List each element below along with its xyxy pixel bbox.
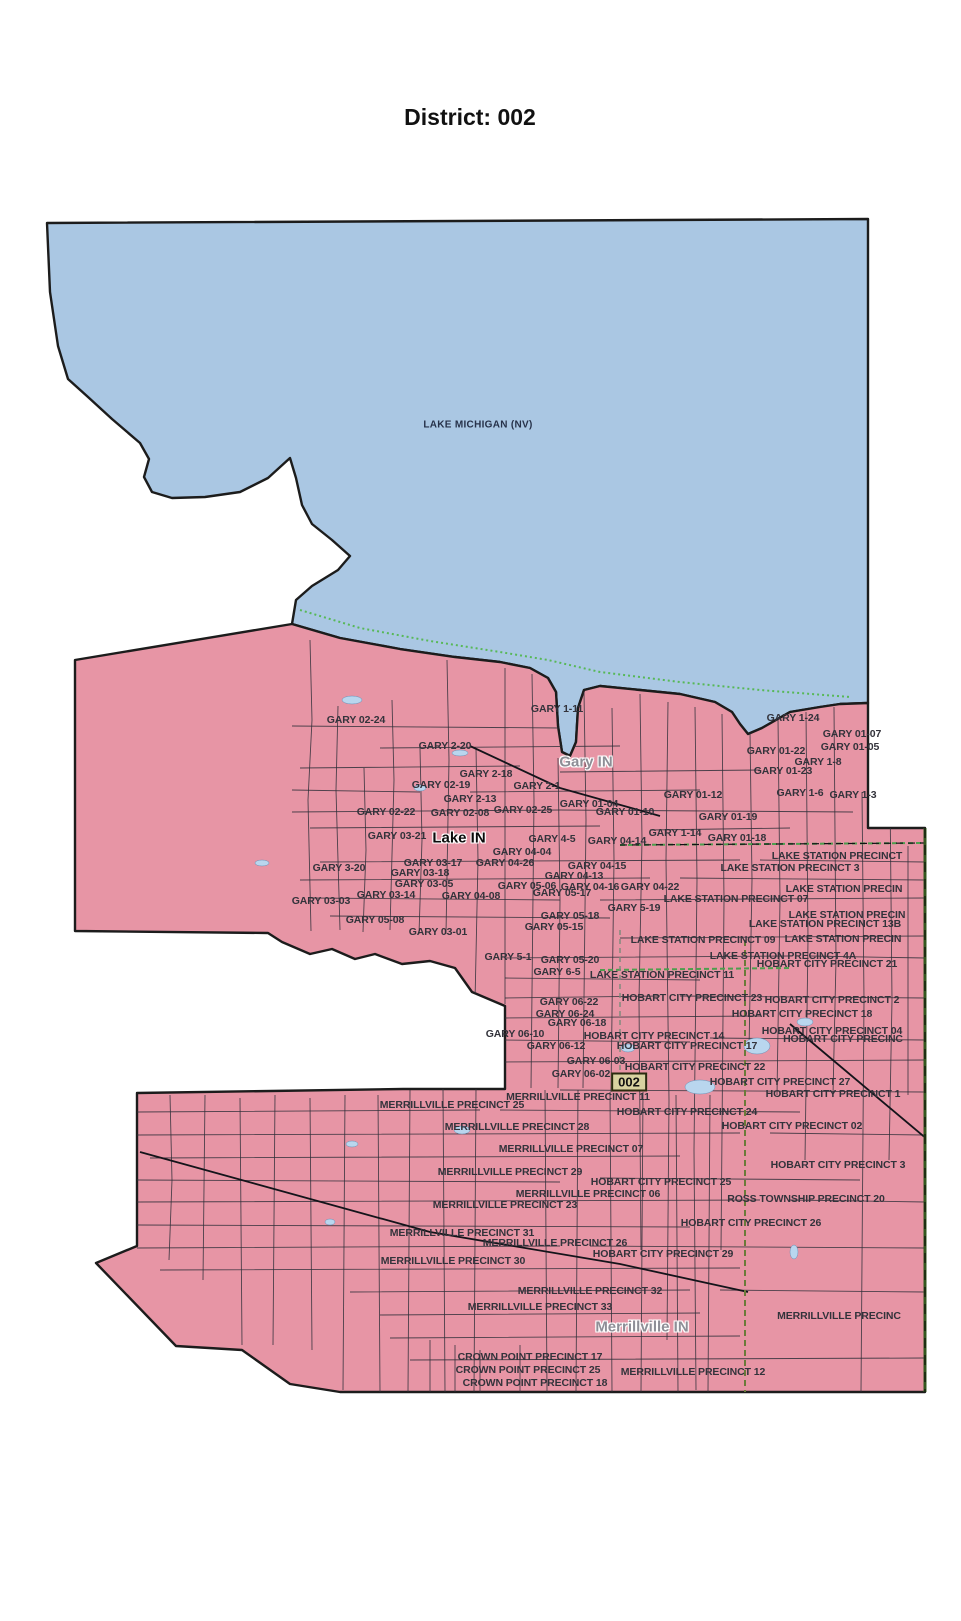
district-002-shape: [75, 624, 925, 1392]
district-badge: 002: [611, 1073, 647, 1092]
district-map: [0, 0, 961, 1621]
district-map-page: District: 002: [0, 0, 961, 1621]
